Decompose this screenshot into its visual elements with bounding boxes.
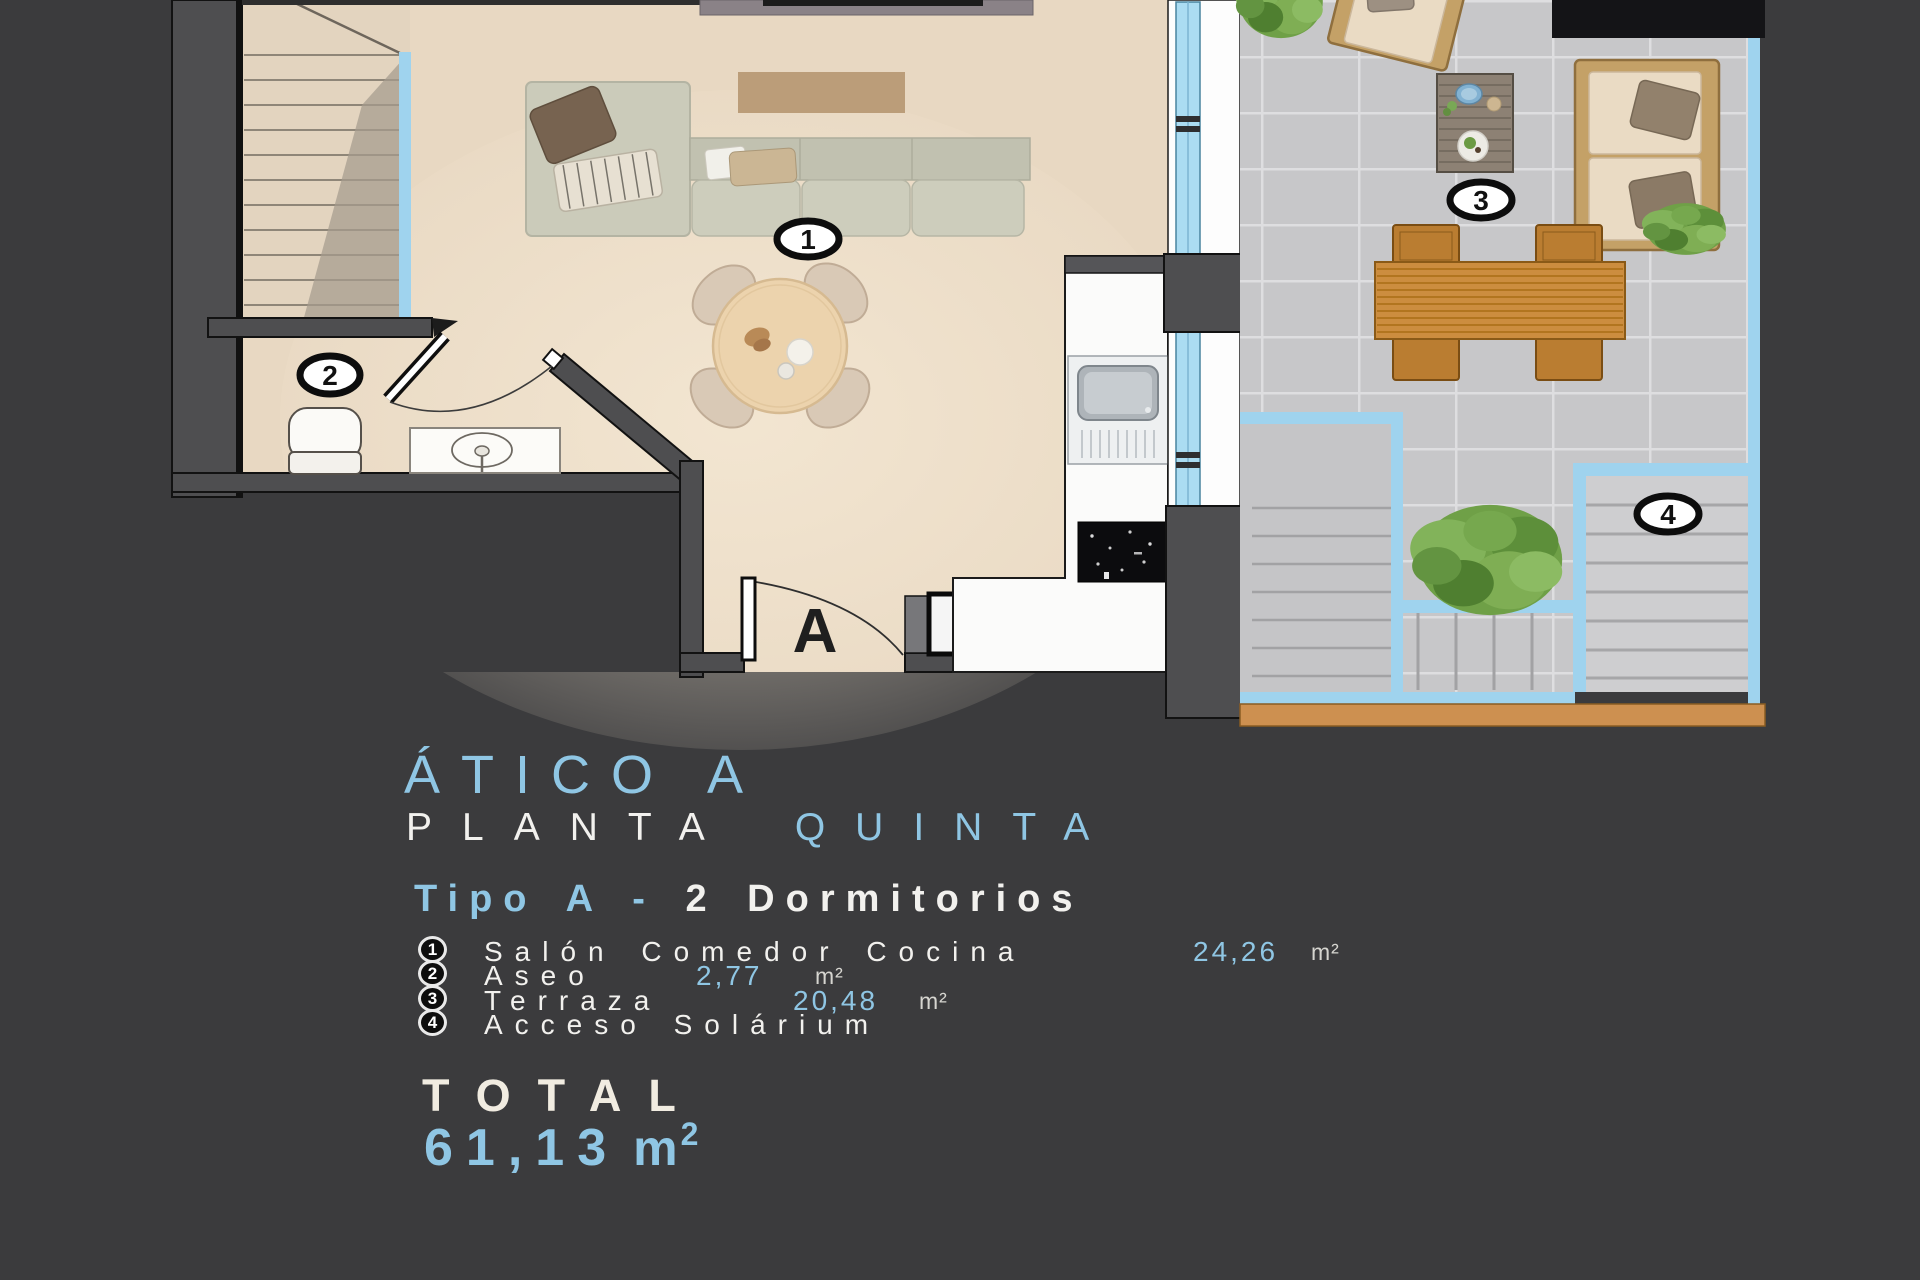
counter-top-band xyxy=(1065,256,1168,273)
marker-number: 1 xyxy=(800,224,816,255)
cooktop xyxy=(1078,522,1170,582)
roof-shaft xyxy=(1552,0,1765,38)
exterior-recess xyxy=(242,492,683,672)
plan-marker-4: 4 xyxy=(1637,496,1699,532)
entry-side-wall xyxy=(680,461,703,677)
interior-staircase xyxy=(242,0,411,337)
plan-marker-3: 3 xyxy=(1450,182,1512,218)
terrace xyxy=(1235,0,1765,726)
chair xyxy=(1393,225,1459,267)
window-band xyxy=(1164,0,1242,718)
plan-marker-1: 1 xyxy=(777,221,839,257)
left-wall-inner-edge xyxy=(236,0,243,497)
plate xyxy=(787,339,813,365)
stair-edge-blue-line xyxy=(399,52,411,337)
terrace-right-blue-line xyxy=(1748,38,1760,706)
wall-pier xyxy=(1164,254,1242,332)
wall-pier xyxy=(1166,506,1242,718)
chair xyxy=(1393,336,1459,380)
toilet xyxy=(289,408,361,474)
stair-landing xyxy=(1240,412,1403,692)
door-leaf xyxy=(742,578,755,660)
kitchen-stub-wall xyxy=(905,596,929,653)
chair xyxy=(1536,336,1602,380)
left-exterior-wall xyxy=(172,0,242,497)
small-plate xyxy=(1487,97,1501,111)
table-top xyxy=(713,279,847,413)
terrace-bottom-blue-line xyxy=(1240,692,1575,704)
table-top xyxy=(1375,262,1625,339)
chair xyxy=(1536,225,1602,267)
marker-number: 4 xyxy=(1660,499,1676,530)
bathroom-top-wall xyxy=(208,318,432,337)
kitchen-door-frame xyxy=(929,594,955,654)
coffee-table-rug xyxy=(738,72,905,113)
sofa-pillow-tan xyxy=(729,148,797,187)
bottom-exterior-wall xyxy=(172,473,692,492)
marker-number: 2 xyxy=(322,360,338,391)
marker-number: 3 xyxy=(1473,185,1489,216)
plan-marker-2: 2 xyxy=(300,356,360,394)
sofa-seat-cushion xyxy=(912,180,1024,236)
tv-screen xyxy=(763,0,983,6)
door-label: A xyxy=(793,597,838,666)
kitchen-sink xyxy=(1068,356,1168,464)
floor-plan: A xyxy=(0,0,1920,1280)
cup xyxy=(778,363,794,379)
entry-bottom-wall-left xyxy=(680,653,744,672)
top-cut-edge xyxy=(242,0,700,5)
sink-vanity xyxy=(410,428,560,473)
wood-deck-strip xyxy=(1240,704,1765,726)
outdoor-coffee-table xyxy=(1437,74,1513,172)
floor-plan-page: A xyxy=(0,0,1920,1280)
